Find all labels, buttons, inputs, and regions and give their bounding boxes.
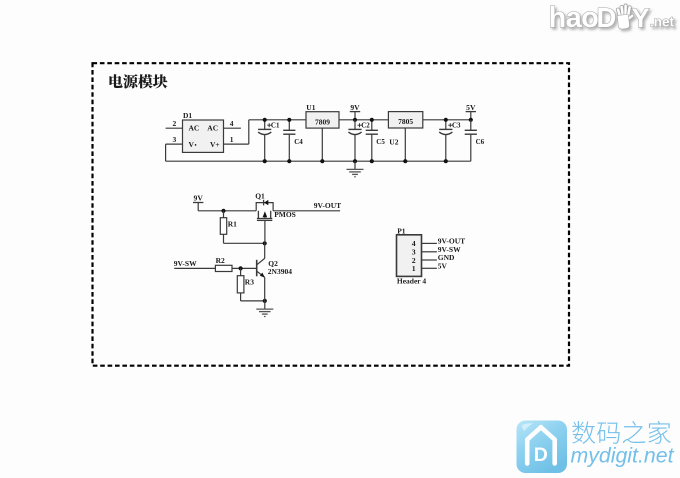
svg-text:D: D [534, 444, 548, 466]
svg-text:C1: C1 [271, 122, 280, 130]
svg-text:5V: 5V [466, 103, 476, 112]
svg-text:C4: C4 [294, 138, 303, 146]
svg-text:2: 2 [173, 119, 177, 128]
svg-text:R3: R3 [245, 277, 254, 286]
svg-text:V+: V+ [210, 140, 220, 149]
svg-text:C6: C6 [476, 138, 485, 146]
svg-text:3: 3 [173, 135, 177, 144]
svg-text:D: D [597, 2, 617, 33]
svg-text:9V-SW: 9V-SW [174, 259, 197, 268]
svg-text:•: • [195, 143, 197, 149]
svg-text:7809: 7809 [315, 117, 330, 126]
svg-text:U1: U1 [306, 103, 315, 112]
svg-text:U2: U2 [389, 138, 398, 147]
svg-text:7805: 7805 [398, 117, 413, 126]
svg-text:9V: 9V [350, 103, 360, 112]
svg-text:AC: AC [207, 124, 218, 133]
svg-text:9V: 9V [194, 194, 204, 203]
svg-text:mydigit.net: mydigit.net [571, 444, 675, 468]
svg-text:C3: C3 [452, 122, 461, 130]
svg-text:hao: hao [549, 2, 599, 34]
svg-text:R1: R1 [228, 220, 237, 229]
svg-text:AC: AC [189, 124, 200, 133]
svg-text:C5: C5 [376, 138, 385, 146]
svg-text:Header 4: Header 4 [397, 276, 426, 285]
svg-text:D1: D1 [183, 111, 192, 120]
svg-text:C2: C2 [361, 122, 370, 130]
svg-text:4: 4 [230, 119, 234, 128]
svg-text:1: 1 [230, 135, 234, 144]
svg-text:2N3904: 2N3904 [268, 267, 292, 276]
svg-text:PMOS: PMOS [274, 210, 296, 219]
svg-text:.net: .net [650, 15, 675, 30]
svg-text:Q1: Q1 [255, 192, 265, 201]
svg-text:Y: Y [632, 3, 650, 33]
svg-text:R2: R2 [216, 256, 225, 265]
svg-text:1: 1 [412, 264, 416, 273]
svg-text:9V-OUT: 9V-OUT [314, 201, 341, 210]
svg-text:5V: 5V [438, 261, 448, 270]
